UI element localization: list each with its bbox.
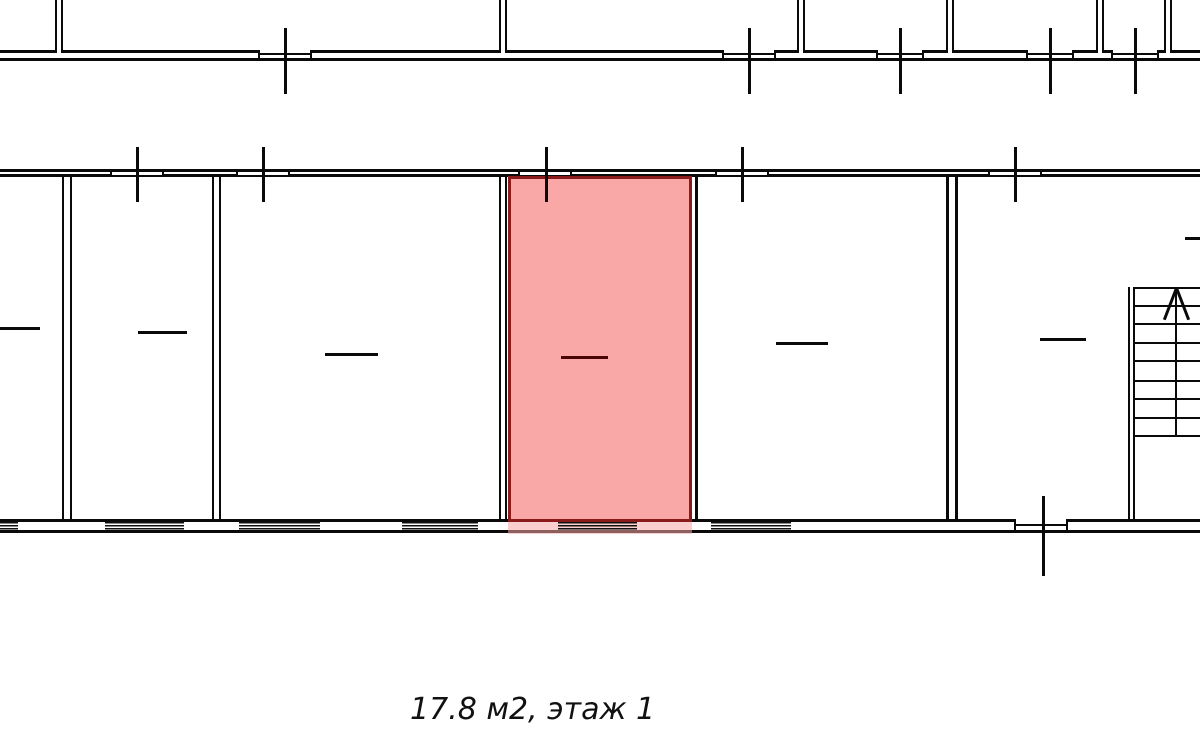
room-dash (1185, 237, 1200, 240)
upper-facade-inner-wall (1172, 50, 1200, 53)
interior-wall-line (695, 176, 698, 521)
upper-section-tick (284, 28, 287, 94)
room-dash (776, 342, 828, 345)
upper-facade-inner-wall (805, 50, 876, 53)
main-top-outer-wall (0, 169, 1200, 172)
door-jamb (1111, 50, 1113, 61)
upper-facade-inner-wall (1074, 50, 1096, 53)
door-jamb (236, 169, 238, 177)
upper-facade-inner-wall (0, 50, 55, 53)
stairwell-wall (1128, 287, 1135, 521)
upper-partition-wall (499, 0, 507, 53)
upper-section-tick (1049, 28, 1052, 94)
door-jamb (1157, 50, 1159, 61)
room-partition-wall (62, 176, 72, 521)
upper-facade-inner-wall (954, 50, 1026, 53)
room-partition-wall (499, 176, 507, 521)
door-jamb (162, 169, 164, 177)
door-jamb (258, 50, 260, 61)
main-top-section-tick (136, 147, 139, 202)
stairs-divider (1175, 287, 1177, 435)
upper-facade-inner-wall (1104, 50, 1111, 53)
stairs-step (1135, 380, 1200, 382)
area-floor-caption: 17.8 м2, этаж 1 (410, 692, 655, 727)
upper-partition-wall (1164, 0, 1172, 53)
stairs-step (1135, 417, 1200, 419)
stairs-step (1135, 342, 1200, 344)
main-top-inner-wall (164, 174, 236, 177)
window-hatch (402, 522, 478, 530)
door-jamb (988, 169, 990, 177)
stairs-step (1135, 287, 1200, 289)
window-hatch (711, 522, 791, 530)
upper-facade-inner-wall (312, 50, 499, 53)
upper-partition-wall (946, 0, 954, 53)
upper-facade-inner-wall (507, 50, 722, 53)
upper-partition-wall (1096, 0, 1104, 53)
floor-plan (0, 0, 1200, 745)
main-top-inner-wall (1042, 174, 1200, 177)
upper-facade-inner-wall (776, 50, 797, 53)
highlighted-room-dash (561, 356, 608, 359)
door-jamb (1014, 519, 1016, 532)
door-jamb (1026, 50, 1028, 61)
main-top-inner-wall (290, 174, 518, 177)
highlighted-room (508, 176, 692, 522)
room-dash (138, 331, 187, 334)
floor-plan-page: 17.8 м2, этаж 1 (0, 0, 1200, 745)
door-jamb (310, 50, 312, 61)
door-jamb (110, 169, 112, 177)
door-jamb (922, 50, 924, 61)
main-top-section-tick (262, 147, 265, 202)
door-jamb (288, 169, 290, 177)
room-dash (0, 327, 40, 330)
door-jamb (722, 50, 724, 61)
door-jamb (1040, 169, 1042, 177)
room-partition-wall (212, 176, 221, 521)
main-top-section-tick (741, 147, 744, 202)
window-hatch (105, 522, 184, 530)
door-jamb (774, 50, 776, 61)
upper-section-tick (748, 28, 751, 94)
upper-partition-wall (55, 0, 63, 53)
window-hatch (558, 522, 637, 530)
door-jamb (1072, 50, 1074, 61)
upper-partition-wall (797, 0, 805, 53)
door-jamb (715, 169, 717, 177)
main-top-inner-wall (0, 174, 110, 177)
upper-facade-inner-wall (63, 50, 258, 53)
stairs-step (1135, 435, 1200, 437)
upper-section-tick (899, 28, 902, 94)
upper-facade-outer-wall (0, 58, 1200, 61)
upper-section-tick (1134, 28, 1137, 94)
main-top-section-tick (1014, 147, 1017, 202)
window-hatch (239, 522, 320, 530)
stairs-step (1135, 398, 1200, 400)
main-bottom-section-tick (1042, 496, 1045, 576)
stairs-step (1135, 360, 1200, 362)
main-top-section-tick (545, 147, 548, 202)
room-dash (325, 353, 378, 356)
door-jamb (876, 50, 878, 61)
room-partition-wall (946, 176, 958, 521)
room-dash (1040, 338, 1086, 341)
door-jamb (1066, 519, 1068, 532)
door-jamb (767, 169, 769, 177)
upper-facade-inner-wall (924, 50, 946, 53)
window-hatch (0, 522, 18, 530)
stairs-step (1135, 323, 1200, 325)
